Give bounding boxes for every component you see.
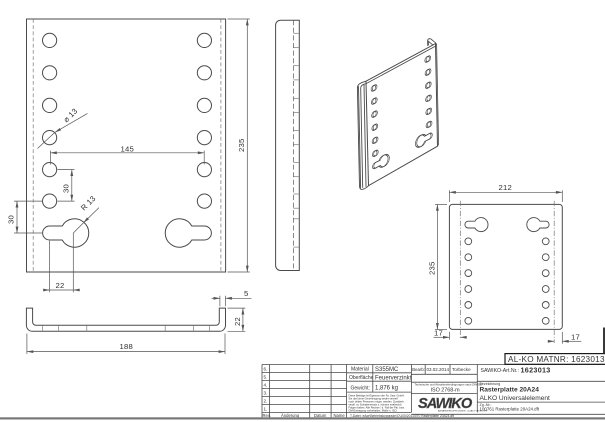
svg-text:Gewicht:: Gewicht: — [351, 385, 370, 391]
svg-text:22: 22 — [56, 281, 65, 290]
svg-text:30: 30 — [7, 215, 16, 224]
svg-text:6.: 6. — [264, 367, 268, 372]
svg-text:22: 22 — [233, 317, 242, 326]
svg-text:SAWIKO-Art.Nr.:: SAWIKO-Art.Nr.: — [481, 368, 519, 374]
svg-text:AL-KO MATNR: 1623013: AL-KO MATNR: 1623013 — [508, 355, 605, 364]
svg-text:4.: 4. — [264, 383, 268, 388]
svg-text:2.: 2. — [264, 398, 268, 403]
svg-text:Feuerverzinkt: Feuerverzinkt — [375, 376, 412, 382]
svg-text:ISO 2768-m: ISO 2768-m — [431, 387, 461, 393]
svg-text:Rasterplatte 20A24: Rasterplatte 20A24 — [480, 387, 540, 394]
svg-text:1623013: 1623013 — [521, 366, 551, 375]
svg-text:188: 188 — [120, 342, 133, 351]
svg-text:03.02.2014: 03.02.2014 — [427, 367, 450, 372]
svg-text:5.: 5. — [264, 375, 268, 380]
svg-text:1.: 1. — [264, 406, 268, 411]
svg-text:R 13: R 13 — [79, 194, 97, 212]
svg-text:Rev.: Rev. — [263, 413, 271, 418]
svg-text:235: 235 — [428, 262, 437, 275]
svg-text:S355MC: S355MC — [375, 367, 399, 373]
svg-text:145: 145 — [121, 144, 134, 153]
svg-text:Oberfläche: Oberfläche — [349, 375, 374, 381]
svg-text:Name: Name — [334, 413, 346, 418]
svg-text:5: 5 — [244, 289, 248, 298]
svg-text:212: 212 — [499, 183, 512, 192]
svg-text:ALKO Universalelement: ALKO Universalelement — [480, 395, 551, 402]
svg-text:1,876 kg: 1,876 kg — [375, 386, 398, 392]
svg-text:⌀ 13: ⌀ 13 — [62, 106, 80, 124]
svg-text:100761 Rasterplatte 20A24.dft: 100761 Rasterplatte 20A24.dft — [480, 407, 540, 412]
svg-text:Material: Material — [351, 367, 369, 373]
svg-text:Torbecke: Torbecke — [452, 367, 471, 372]
svg-text:Bearb:: Bearb: — [412, 367, 425, 372]
svg-text:17: 17 — [434, 328, 443, 337]
svg-text:30: 30 — [62, 184, 71, 193]
svg-text:235: 235 — [237, 139, 246, 152]
svg-text:Datum: Datum — [314, 413, 327, 418]
svg-text:GM-Eintragung vorbehalten. Maß: GM-Eintragung vorbehalten. Maße n. ISO. — [349, 409, 398, 413]
svg-text:Technische und Abnahmebedingun: Technische und Abnahmebedingungen nach D… — [415, 383, 482, 387]
svg-text:3.: 3. — [264, 390, 268, 395]
svg-text:Änderung: Änderung — [281, 413, 300, 418]
svg-text:Bezeichnung: Bezeichnung — [480, 382, 501, 386]
svg-text:17: 17 — [571, 332, 580, 341]
